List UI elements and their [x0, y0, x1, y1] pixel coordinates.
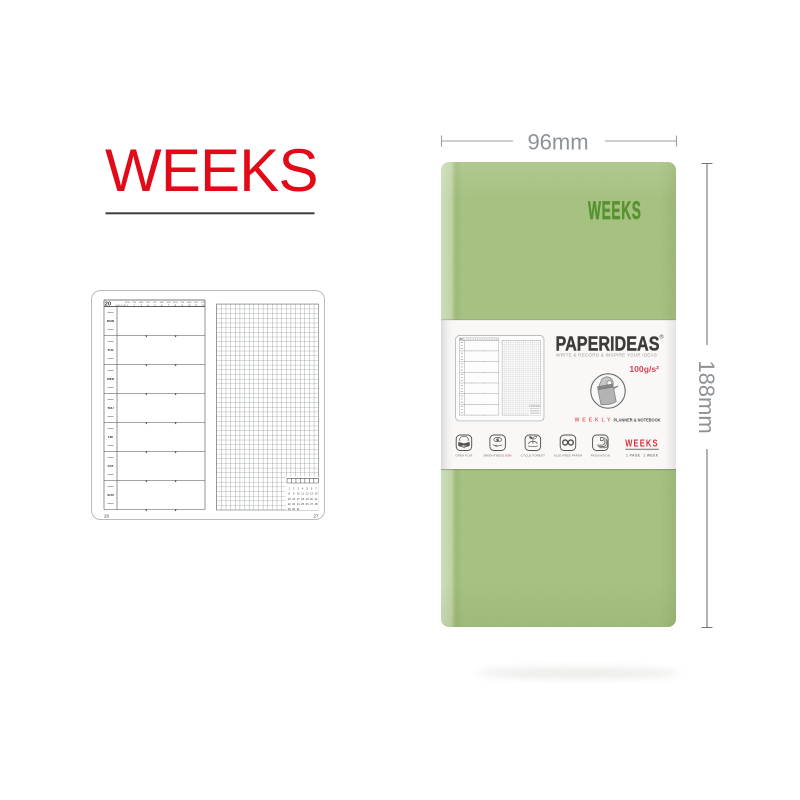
svg-text:OPEN FLAT: OPEN FLAT [455, 454, 473, 458]
svg-text:1 PAGE 1 WEEK: 1 PAGE 1 WEEK [626, 454, 659, 458]
svg-text:26: 26 [104, 514, 110, 519]
svg-text:SUN: SUN [107, 493, 114, 497]
svg-text:100g/s²: 100g/s² [629, 364, 659, 374]
svg-text:WEEKS: WEEKS [588, 197, 642, 225]
svg-text:TUE: TUE [107, 348, 113, 352]
svg-text:180°: 180° [461, 445, 466, 448]
svg-text:PLANNER & NOTEBOOK: PLANNER & NOTEBOOK [614, 418, 662, 423]
svg-text:ACID FREE PAPER: ACID FREE PAPER [554, 454, 583, 458]
svg-text:27: 27 [313, 514, 319, 519]
svg-text:CYCLE FOREST: CYCLE FOREST [521, 454, 545, 458]
svg-text:MON: MON [107, 319, 115, 323]
svg-text:SAT: SAT [108, 464, 114, 468]
svg-text:WEEKS: WEEKS [625, 439, 659, 450]
svg-text:PAGINATION: PAGINATION [591, 454, 610, 458]
svg-text:WEEKS: WEEKS [105, 137, 319, 204]
svg-text:BRIGHTNESS 83%: BRIGHTNESS 83% [484, 454, 512, 458]
svg-text:THU: THU [107, 406, 114, 410]
svg-text:FRI: FRI [108, 435, 113, 439]
svg-text:WRITE & RECORD & INSPIRE YOUR: WRITE & RECORD & INSPIRE YOUR IDEAS [556, 353, 657, 358]
svg-text:96mm: 96mm [527, 130, 588, 155]
svg-text:188mm: 188mm [694, 360, 719, 433]
svg-text:WED: WED [107, 377, 115, 381]
